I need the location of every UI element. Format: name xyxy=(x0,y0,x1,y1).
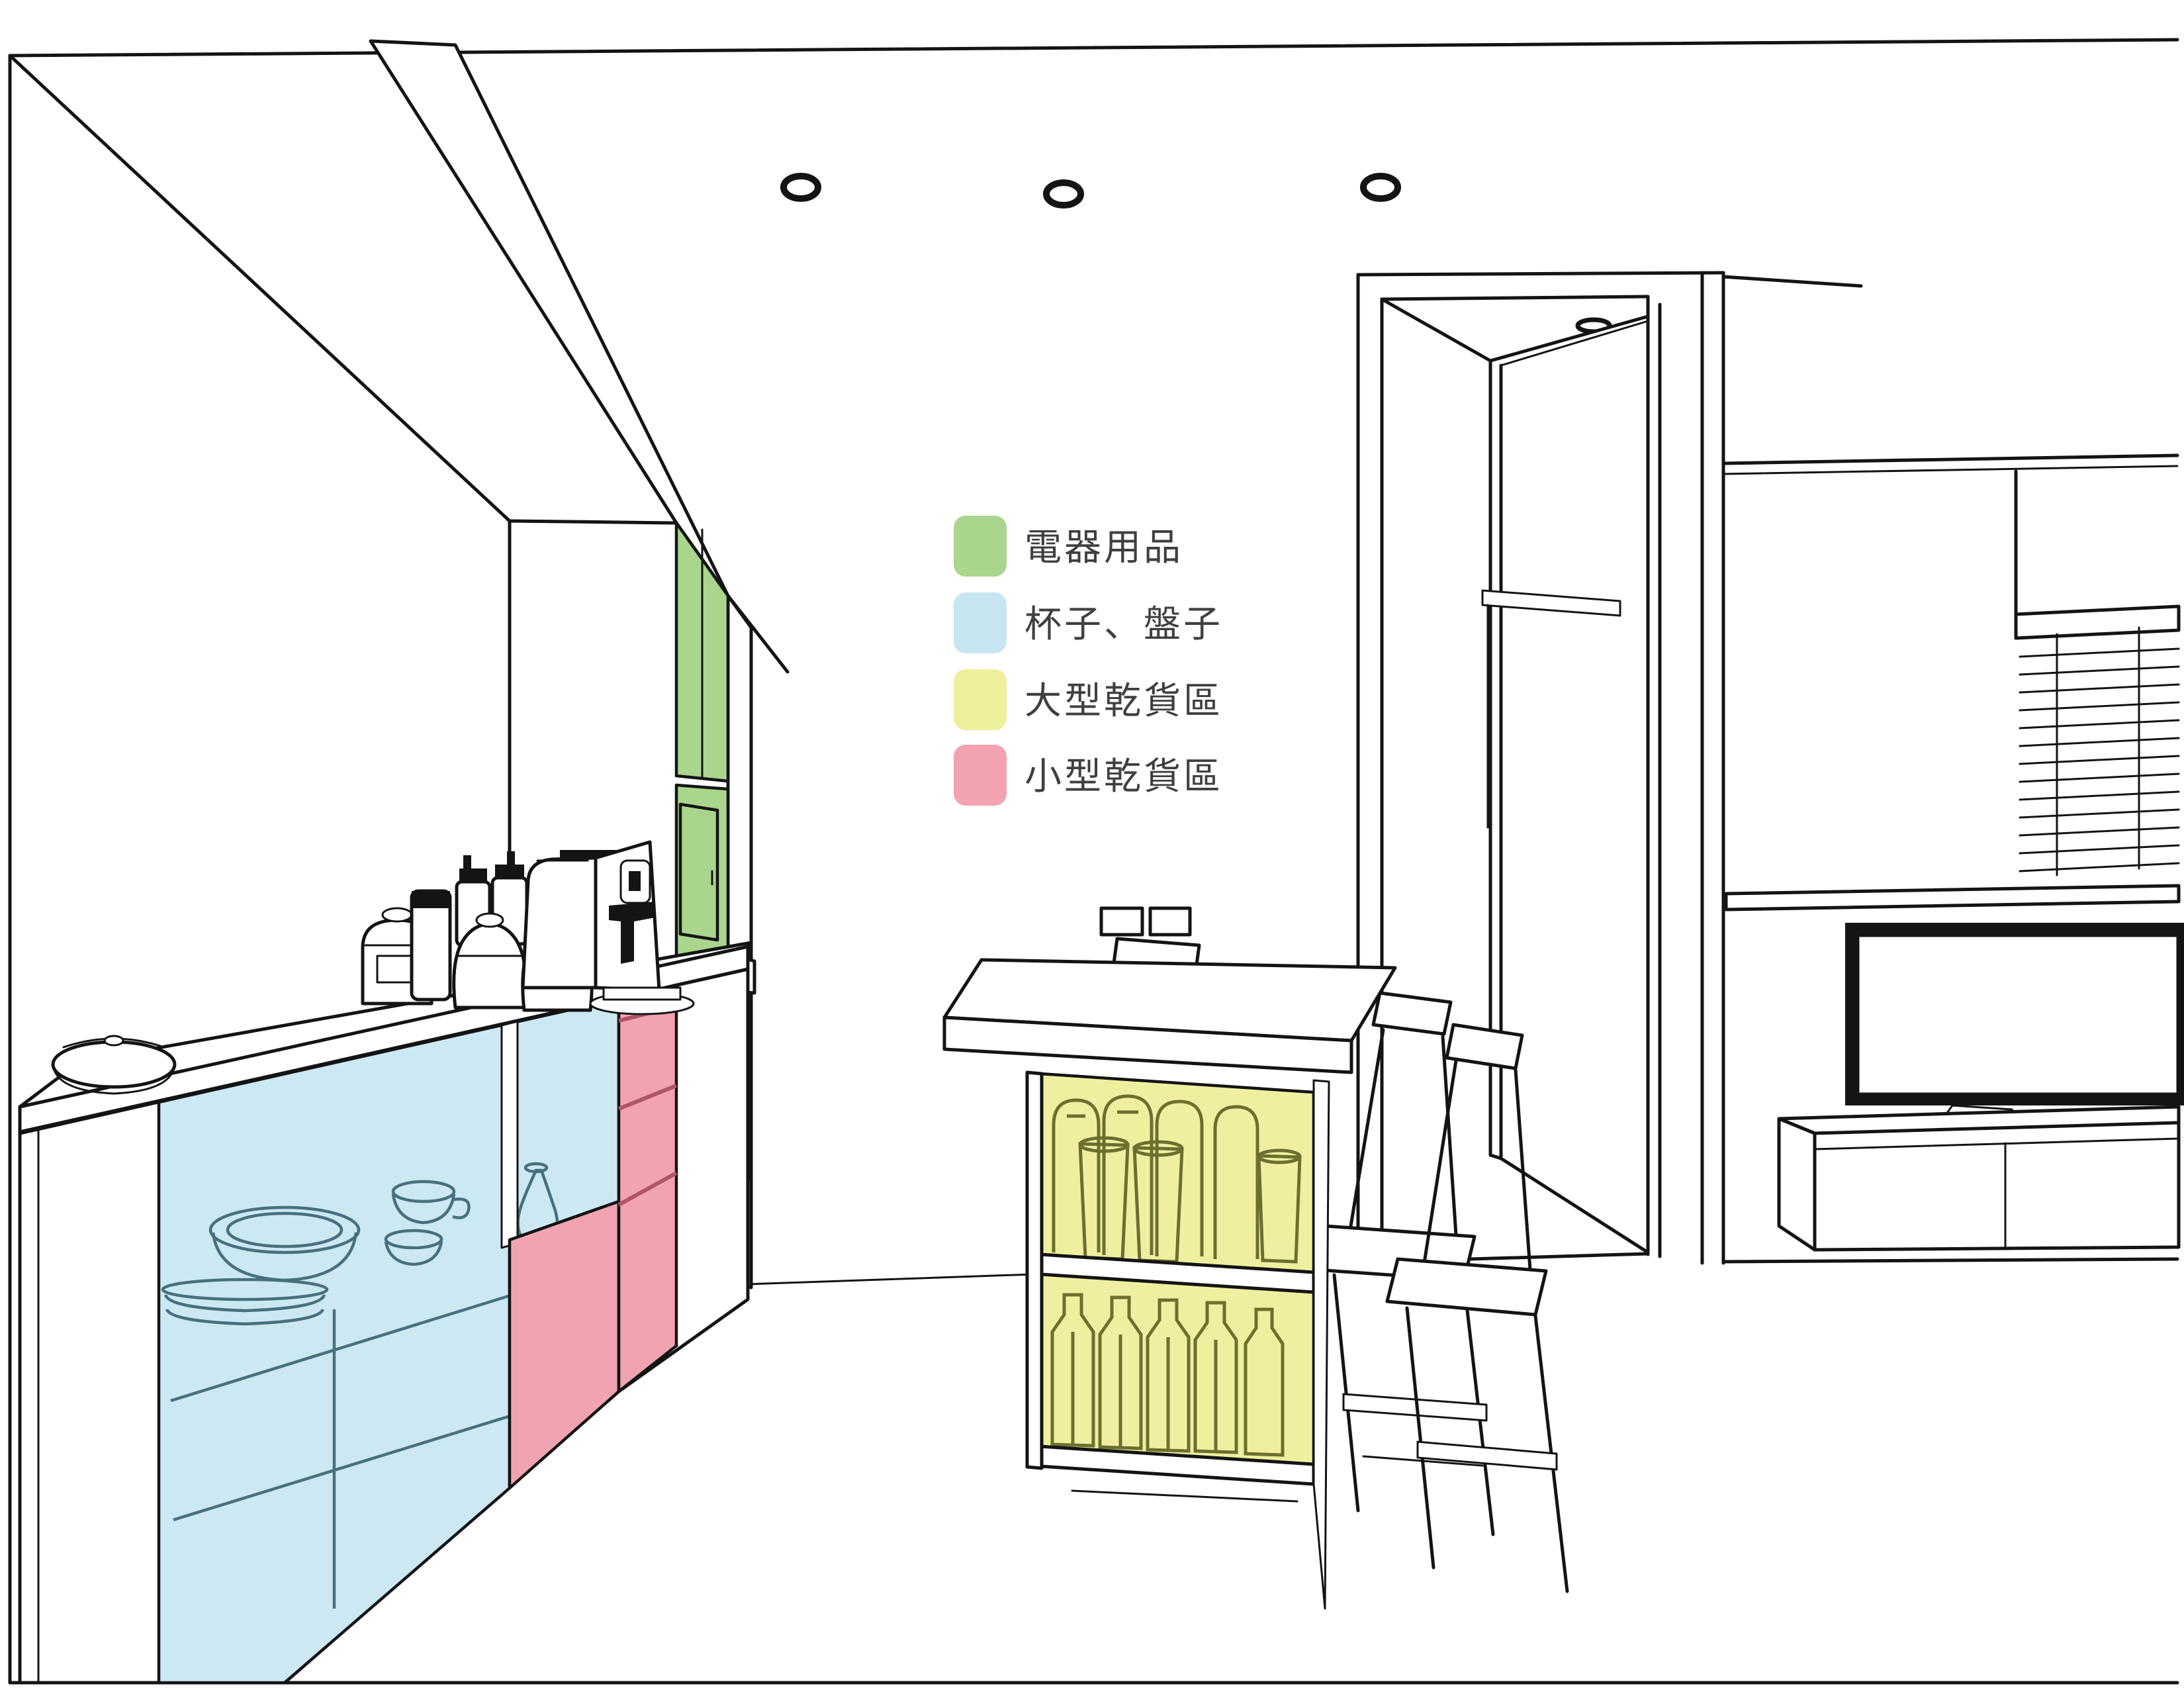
opening-top-line-2 xyxy=(1723,466,2177,474)
outlet xyxy=(1150,908,1190,935)
recessed-light xyxy=(784,176,818,199)
media-console xyxy=(1779,1107,2179,1250)
ceiling-lights xyxy=(784,176,1398,205)
doorway xyxy=(1358,273,1723,1263)
stool-backrest xyxy=(1373,993,1451,1034)
glass-door-mullion xyxy=(502,1021,518,1248)
legend-label-large-dry-goods: 大型乾貨區 xyxy=(1024,680,1223,722)
living-room-section xyxy=(1723,277,2184,1250)
half-wall-ledge xyxy=(1726,886,2179,910)
legend-item-appliances xyxy=(954,516,1007,577)
stool-seat xyxy=(1387,1259,1546,1315)
legend-labels: 電器用品 杯子、盤子 大型乾貨區 小型乾貨區 xyxy=(1024,526,1223,797)
interior-perspective-rendering: 電器用品 杯子、盤子 大型乾貨區 小型乾貨區 xyxy=(0,0,2184,1688)
door-header-inner xyxy=(1382,297,1648,299)
legend-swatch-small-dry-goods xyxy=(954,745,1007,806)
venetian-blinds xyxy=(2016,606,2179,875)
legend-swatch-appliances xyxy=(954,516,1007,577)
island-left-panel xyxy=(1027,1072,1042,1468)
beam-top-edge xyxy=(1723,277,1861,286)
legend-label-cups-plates: 杯子、盤子 xyxy=(1024,603,1223,645)
console-end-panel xyxy=(1779,1119,1815,1250)
ceiling-edge xyxy=(10,40,2177,56)
legend-swatch-cups-plates xyxy=(954,592,1007,653)
open-door xyxy=(1490,316,1648,1252)
opening-top-line-1 xyxy=(1723,455,2177,463)
console-front xyxy=(1815,1123,2179,1250)
scene-svg: 電器用品 杯子、盤子 大型乾貨區 小型乾貨區 xyxy=(0,0,2184,1688)
right-floor-line xyxy=(1723,1259,2177,1262)
coffee-machine xyxy=(523,842,694,1014)
television xyxy=(1845,923,2184,1128)
tall-glass-jar xyxy=(412,891,450,1000)
pink-sliding-door xyxy=(510,1201,619,1488)
island-base-line xyxy=(1072,1491,1297,1501)
casserole-pot xyxy=(53,1036,175,1094)
legend-swatch-large-dry-goods xyxy=(954,669,1007,730)
door-panel xyxy=(1490,316,1648,1252)
legend-item-large-dry-goods xyxy=(954,669,1007,730)
stool-footrest xyxy=(1418,1442,1557,1470)
wall-outlets xyxy=(1101,908,1190,935)
island-unit xyxy=(1027,1072,1314,1501)
glass-door-right xyxy=(510,999,619,1240)
outlet xyxy=(1101,908,1142,935)
blinds-slats xyxy=(2020,649,2179,871)
legend-item-small-dry-goods xyxy=(954,745,1007,806)
island-right-panel xyxy=(1314,1080,1329,1609)
legend-label-appliances: 電器用品 xyxy=(1024,526,1183,568)
back-wall-top-edge xyxy=(510,521,676,523)
legend-label-small-dry-goods: 小型乾貨區 xyxy=(1024,755,1223,797)
recessed-light xyxy=(1046,183,1081,205)
blinds-headrail xyxy=(2016,606,2179,638)
recessed-light xyxy=(1363,176,1398,199)
legend: 電器用品 杯子、盤子 大型乾貨區 小型乾貨區 xyxy=(954,516,1223,806)
legend-item-cups-plates xyxy=(954,592,1007,653)
corridor-ceiling-edge xyxy=(1382,299,1490,361)
tv-screen xyxy=(1858,936,2177,1094)
door-header-outer xyxy=(1358,273,1723,275)
ceiling-soffit xyxy=(371,41,728,596)
